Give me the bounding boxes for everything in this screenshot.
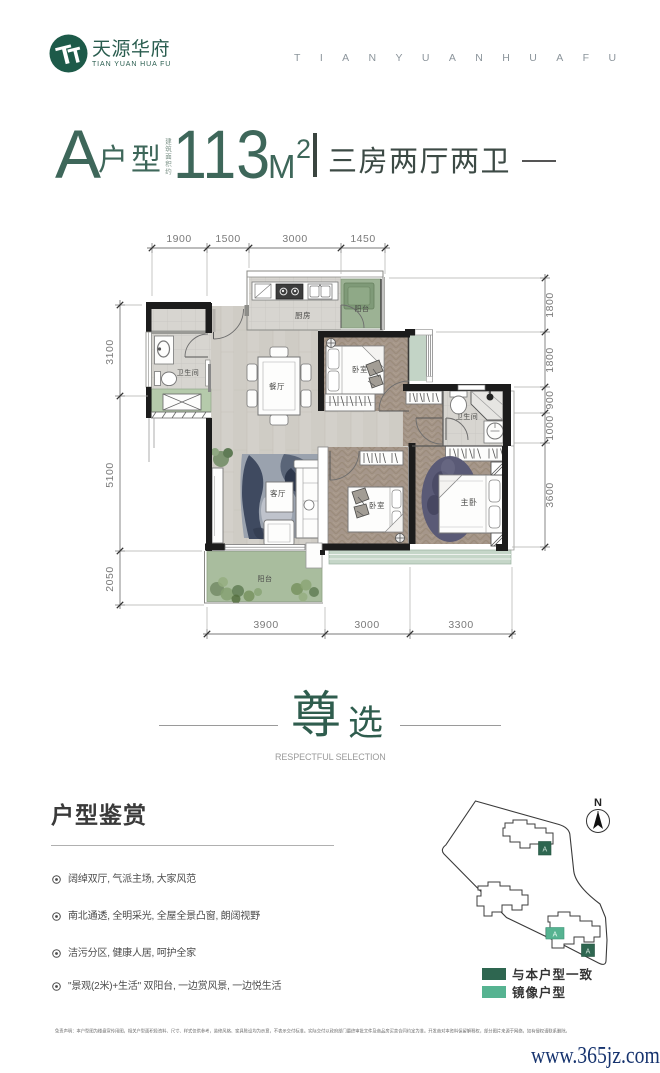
svg-text:1900: 1900 (166, 233, 191, 245)
svg-text:1000: 1000 (544, 415, 556, 440)
svg-text:主卧: 主卧 (461, 497, 478, 507)
svg-text:3100: 3100 (104, 339, 116, 364)
svg-text:A: A (542, 847, 547, 854)
svg-text:2050: 2050 (104, 566, 116, 591)
svg-text:900: 900 (544, 390, 556, 409)
svg-text:3300: 3300 (448, 619, 473, 631)
svg-text:3900: 3900 (253, 619, 278, 631)
svg-text:3000: 3000 (282, 233, 307, 245)
svg-text:厨房: 厨房 (295, 310, 311, 320)
svg-text:阳台: 阳台 (258, 574, 273, 583)
svg-text:1800: 1800 (544, 347, 556, 372)
svg-text:卫生间: 卫生间 (177, 368, 200, 377)
svg-text:卧室: 卧室 (369, 500, 385, 510)
svg-text:N: N (594, 797, 602, 809)
svg-text:餐厅: 餐厅 (269, 382, 285, 391)
svg-text:与本户型一致: 与本户型一致 (512, 967, 593, 982)
svg-text:客厅: 客厅 (270, 488, 286, 498)
svg-text:3600: 3600 (544, 482, 556, 507)
svg-text:5100: 5100 (104, 462, 116, 487)
svg-text:卫生间: 卫生间 (456, 412, 479, 421)
svg-text:A: A (586, 949, 591, 956)
svg-text:A: A (553, 932, 558, 939)
svg-text:镜像户型: 镜像户型 (512, 985, 566, 1000)
svg-text:3000: 3000 (354, 619, 379, 631)
svg-text:1800: 1800 (544, 292, 556, 317)
svg-text:1450: 1450 (350, 233, 375, 245)
svg-text:卧室: 卧室 (352, 364, 368, 374)
svg-text:阳台: 阳台 (355, 304, 370, 313)
svg-text:1500: 1500 (215, 233, 240, 245)
